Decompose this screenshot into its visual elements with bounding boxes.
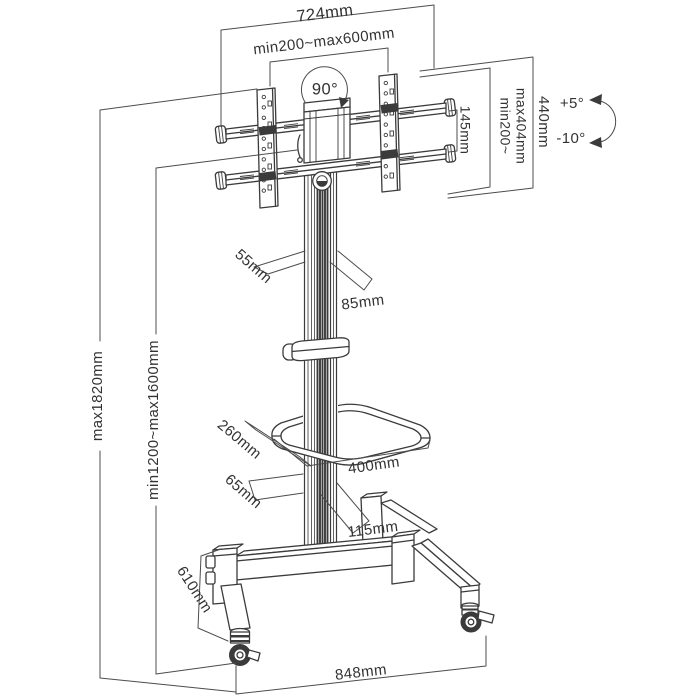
front-right-leg	[412, 543, 474, 592]
tilt-arrow: +5° -10°	[556, 94, 615, 148]
label-shelf-depth: 260mm	[214, 416, 265, 462]
vesa-rail-right	[379, 74, 400, 192]
vesa-rail-left	[257, 88, 278, 208]
tv-stand-dimension-diagram: 90° +5° -10° 724mm min200~max600mm 145mm…	[0, 0, 700, 700]
label-base-leg-depth: 610mm	[173, 563, 216, 616]
label-vesa-width-range: min200~max600mm	[252, 25, 395, 59]
height-collar	[283, 338, 349, 361]
tilt-arrowhead-up	[589, 94, 602, 105]
dim-vesa-height	[420, 68, 490, 194]
diagram-canvas: 90° +5° -10° 724mm min200~max600mm 145mm…	[0, 0, 700, 700]
caster-front-left	[229, 629, 260, 667]
label-column-front-width: 55mm	[231, 246, 275, 287]
base	[206, 530, 494, 666]
label-tv-height-range: min1200~max1600mm	[145, 340, 162, 500]
front-left-leg	[221, 584, 250, 630]
tilt-up-label: +5°	[560, 95, 584, 112]
label-vesa-height-min: min200~	[497, 98, 513, 155]
label-lower-column-width: 65mm	[221, 471, 265, 512]
label-base-width: 848mm	[334, 661, 388, 684]
label-top-width: 724mm	[296, 1, 355, 26]
label-column-side-depth: 85mm	[340, 291, 385, 313]
tilt-arrowhead-down	[589, 137, 602, 148]
caster-front-right	[461, 603, 494, 633]
label-bracket-height: 440mm	[535, 96, 552, 148]
label-max-height: max1820mm	[89, 351, 106, 441]
label-vesa-height-max: max404mm	[513, 88, 529, 164]
label-crossbar-spacing: 145mm	[457, 106, 473, 155]
swivel-angle-label: 90°	[312, 80, 338, 98]
tilt-down-label: -10°	[556, 130, 585, 147]
